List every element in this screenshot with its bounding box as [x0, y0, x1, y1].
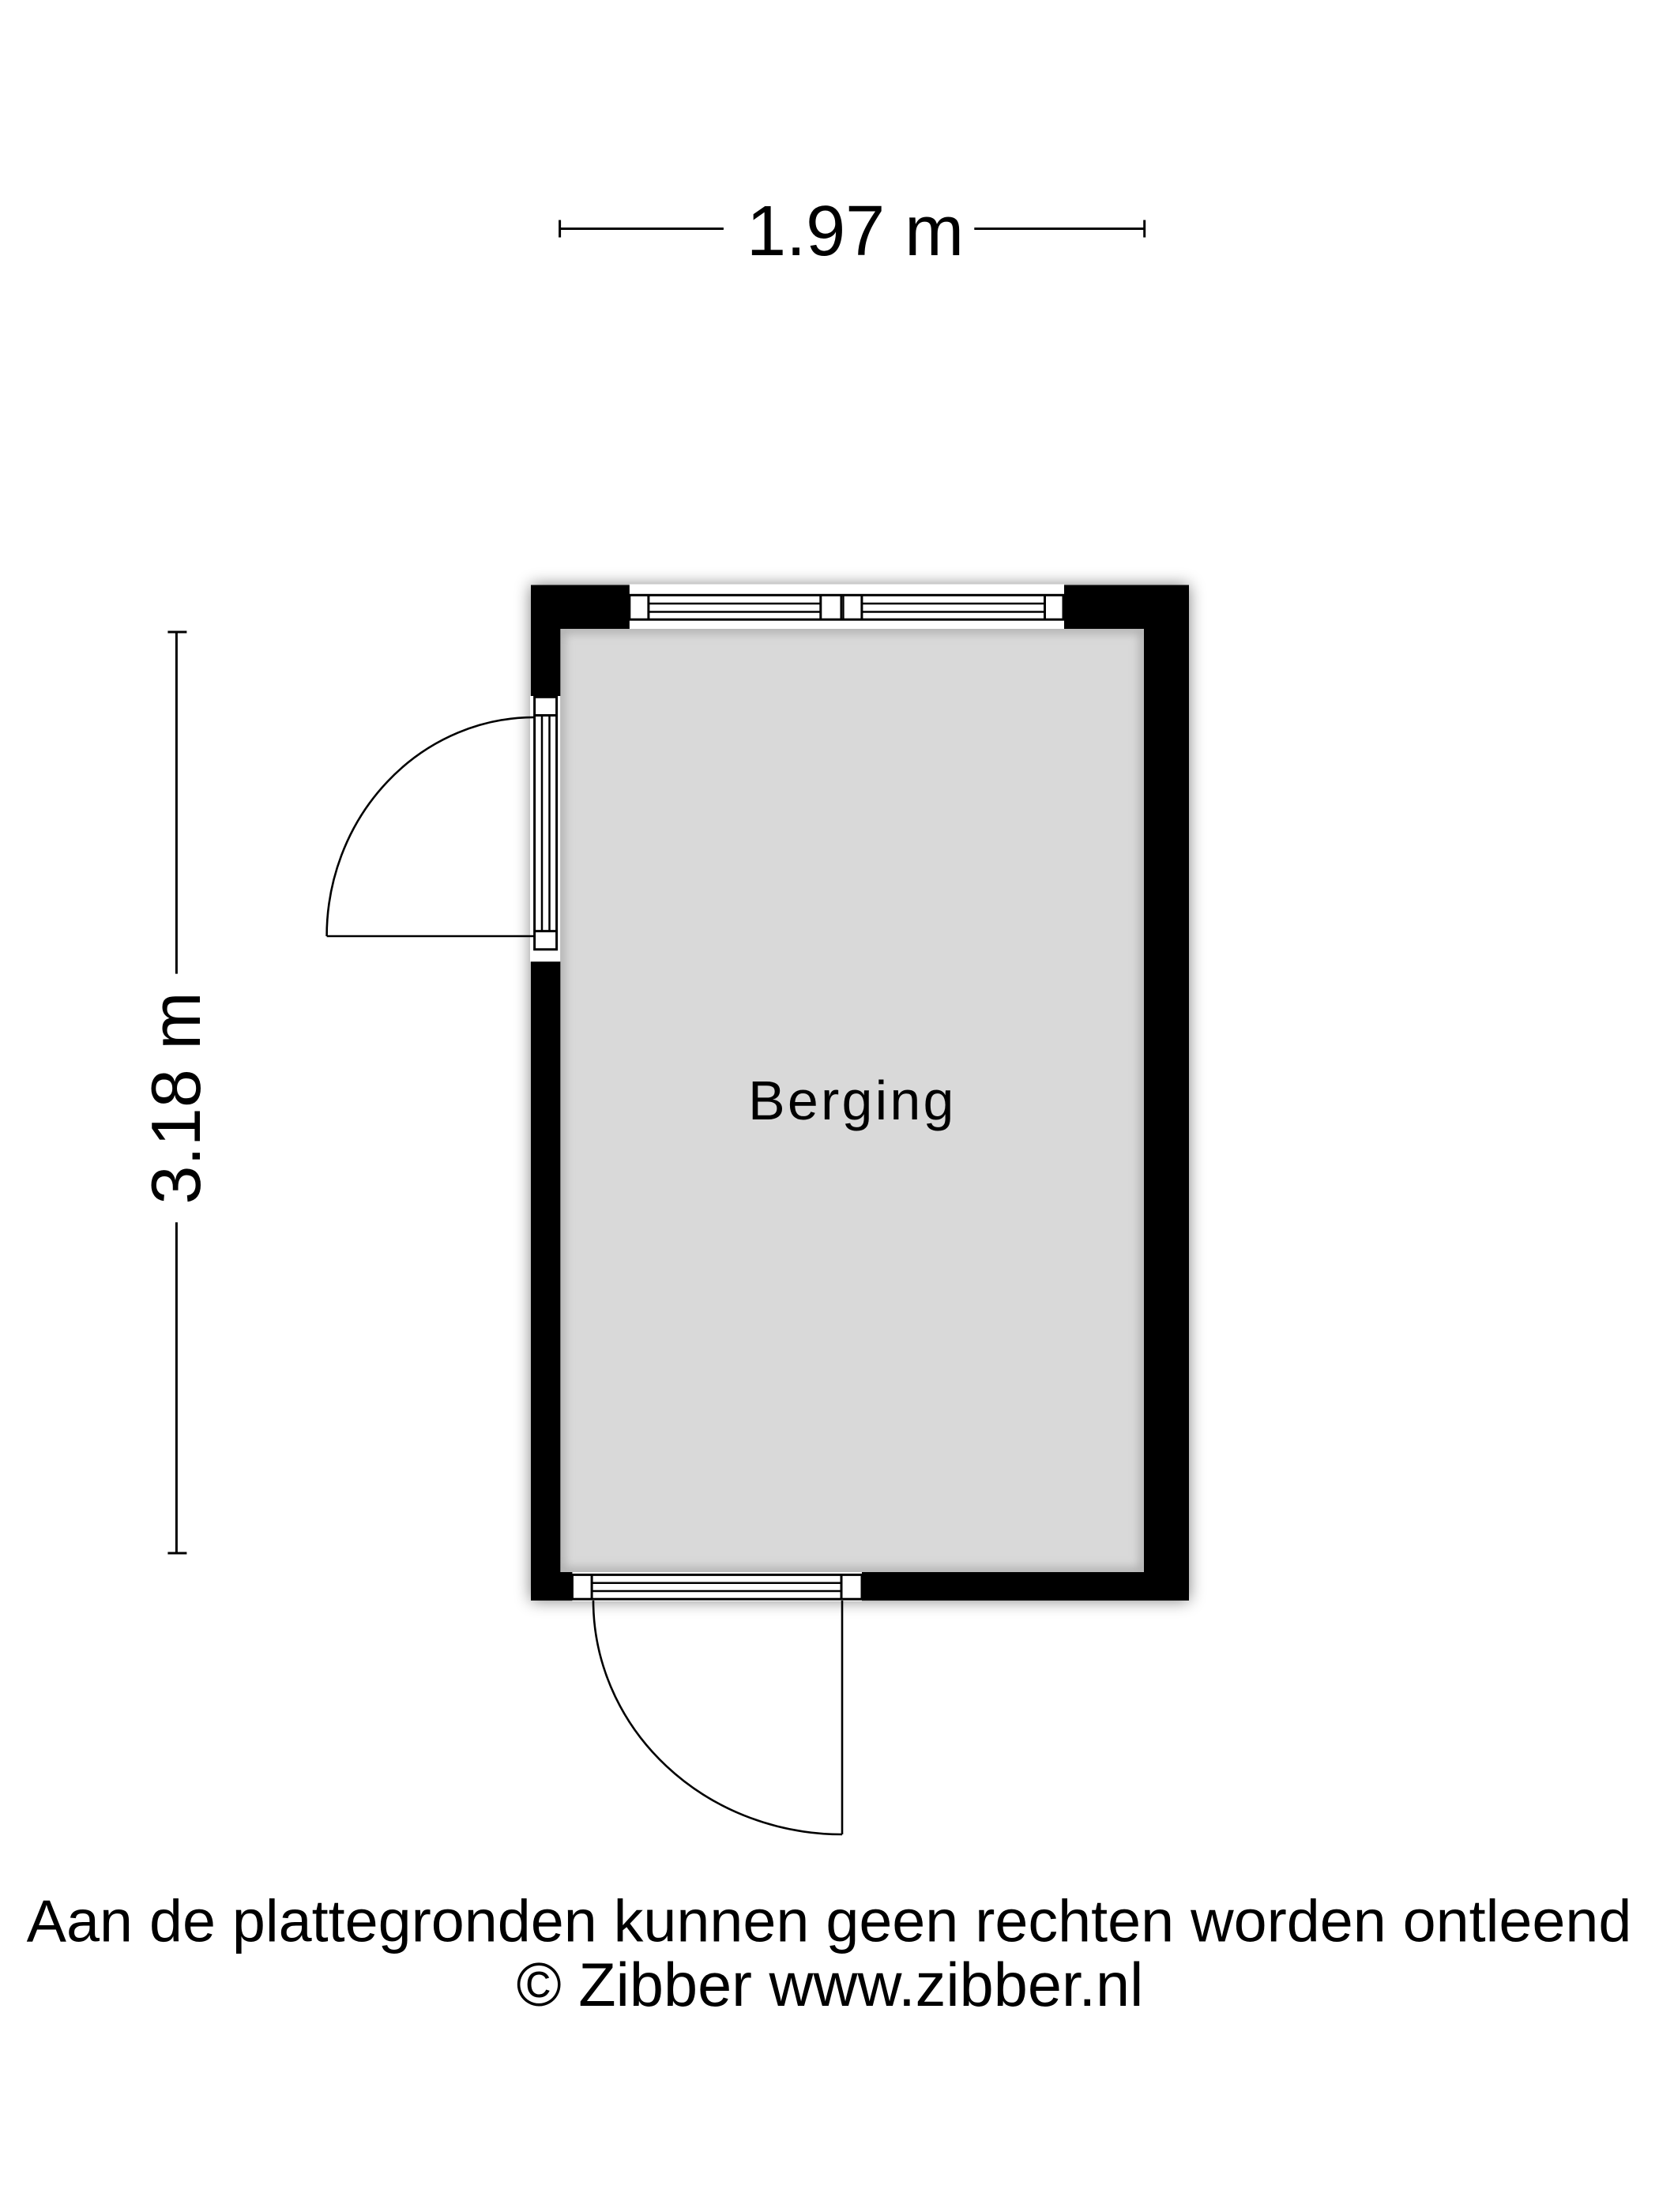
svg-text:Berging: Berging [748, 1070, 957, 1131]
svg-text:© Zibber www.zibber.nl: © Zibber www.zibber.nl [517, 1951, 1144, 2019]
svg-text:Aan de plattegronden kunnen ge: Aan de plattegronden kunnen geen rechten… [27, 1888, 1632, 1954]
svg-text:3.18 m: 3.18 m [137, 991, 215, 1204]
svg-text:1.97 m: 1.97 m [747, 192, 964, 271]
